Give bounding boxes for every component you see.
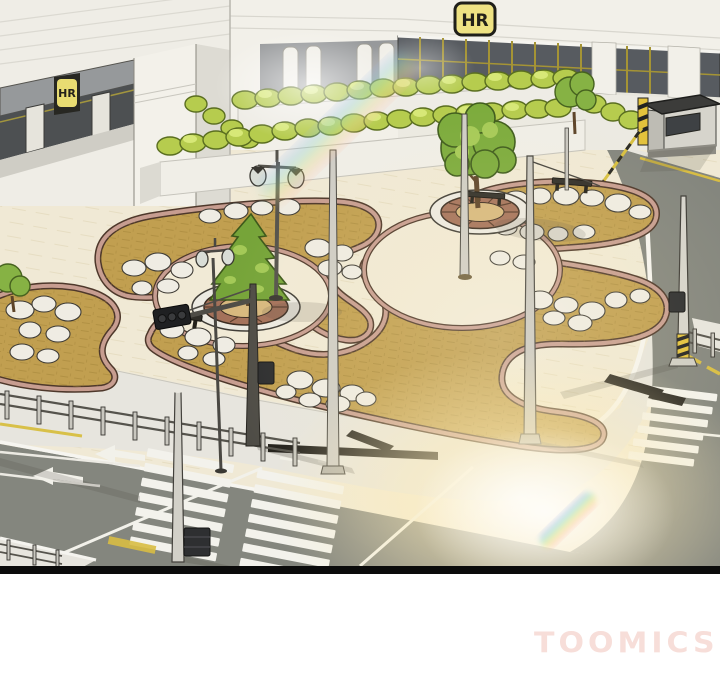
svg-text:HR: HR <box>58 87 76 100</box>
webtoon-panel: HR HR <box>0 0 720 574</box>
webtoon-page: HR HR <box>0 0 720 700</box>
entrance-pillar <box>26 104 44 153</box>
panel-border <box>0 566 720 574</box>
page-footer: TOOMICS <box>0 574 720 700</box>
toomics-watermark: TOOMICS <box>534 627 719 661</box>
hr-sign-entrance: HR <box>54 73 80 115</box>
hr-sign-main: HR <box>455 3 495 35</box>
signal-controller-box <box>184 528 210 556</box>
svg-text:HR: HR <box>461 11 488 31</box>
